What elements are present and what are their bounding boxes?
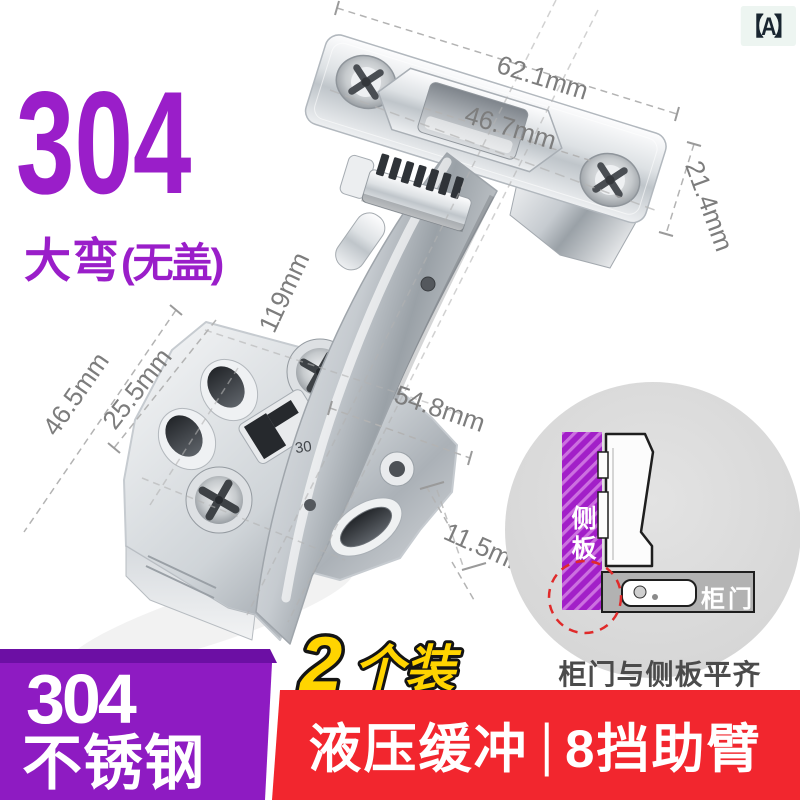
material-name: 不锈钢	[22, 734, 272, 794]
subtitle-note: (无盖)	[121, 229, 222, 289]
dim-base-width: 46.5mm	[36, 347, 114, 441]
diagram-door-label: 柜门	[701, 579, 755, 614]
dim-plate-height: 21.4mm	[679, 157, 739, 256]
page-title-model: 304	[16, 70, 191, 216]
diagram-mount-plate	[622, 580, 696, 606]
purple-strip	[0, 649, 277, 663]
promo-banner: 液压缓冲 | 8挡助臂	[270, 690, 800, 800]
material-block: 304 不锈钢	[0, 663, 272, 800]
diagram-caption: 柜门与侧板平齐	[548, 653, 772, 693]
page-subtitle: 大弯 (无盖)	[24, 222, 222, 291]
wing-countersink-hole	[380, 452, 414, 486]
subtitle-type: 大弯	[24, 222, 120, 291]
banner-feature-left: 液压缓冲	[309, 707, 529, 783]
arm-rivet-lower	[304, 499, 316, 511]
arm-rivet-upper	[421, 277, 435, 291]
dim-arm-length: 119mm	[252, 247, 315, 337]
dim-slot-mark: 30	[294, 438, 313, 457]
pack-qty-unit: 个装	[354, 641, 462, 697]
variant-badge: 【A】	[741, 6, 796, 46]
material-grade: 304	[26, 665, 272, 734]
banner-feature-right: 8挡助臂	[565, 707, 761, 783]
product-image: 62.1mm 46.7mm 21.4mm 119mm 46.5mm 25.5mm…	[0, 0, 800, 800]
diagram-side-panel-label: 侧板	[569, 505, 594, 565]
banner-divider: |	[541, 712, 553, 778]
install-diagram	[505, 382, 800, 678]
adjust-screw-bottom	[186, 467, 252, 533]
